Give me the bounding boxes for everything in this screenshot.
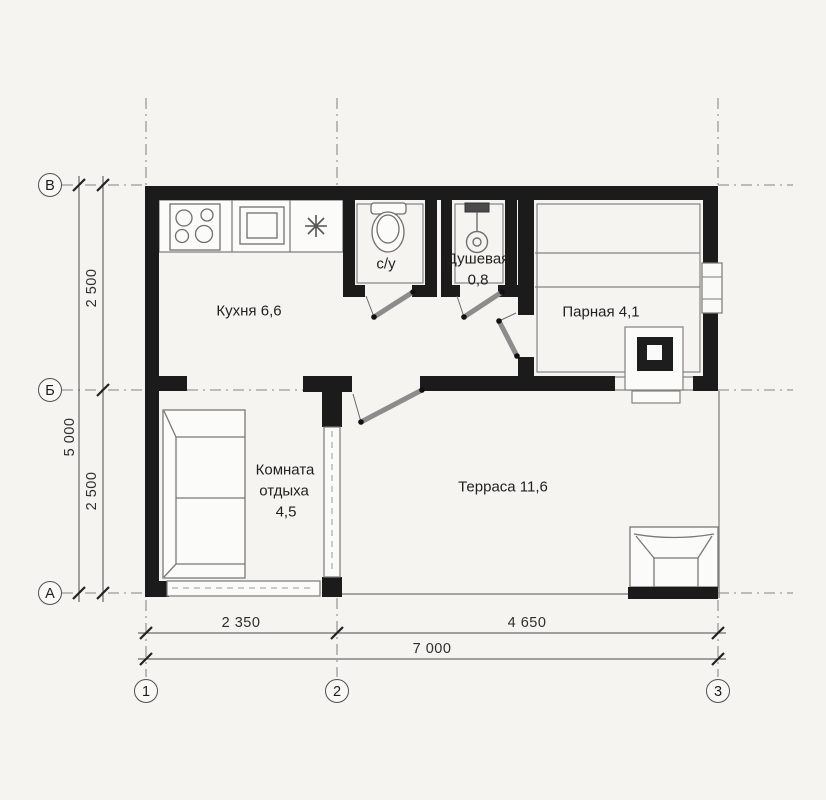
wall-north <box>145 186 718 200</box>
dim-v-segment-top: 2 500 <box>84 269 100 308</box>
wall-west <box>145 186 159 597</box>
doors <box>353 289 520 425</box>
window-lounge-south <box>167 581 320 596</box>
axis-bubble-row-top: В <box>38 173 62 197</box>
axis-bubble-col-right: 3 <box>706 679 730 703</box>
wall-south-corner <box>145 581 169 597</box>
room-area-lounge: 4,5 <box>276 502 297 523</box>
room-label-wc: с/у <box>376 254 395 275</box>
wall-wc-east <box>425 200 437 297</box>
wall-t-stub <box>303 376 352 392</box>
room-label-lounge-2: отдыха <box>259 481 309 502</box>
asterisk-lamp-icon <box>305 215 327 237</box>
floor-plan: Кухня 6,6 с/у Душевая 0,8 Парная 4,1 Ком… <box>0 0 826 800</box>
wall-shower-south-stub <box>441 285 460 297</box>
plan-drawing <box>0 0 826 800</box>
dim-h-segment-left: 2 350 <box>222 615 261 631</box>
room-label-steam: Парная 4,1 <box>562 302 639 323</box>
wall-mid-south <box>420 376 615 391</box>
axis-bubble-row-mid: Б <box>38 378 62 402</box>
wall-steam-west <box>518 200 534 315</box>
table-icon <box>630 527 718 587</box>
wall-steam-west-stub <box>518 357 534 391</box>
dim-h-total: 7 000 <box>413 641 452 657</box>
axis-bubble-col-left: 1 <box>134 679 158 703</box>
stove-feed-tunnel <box>632 391 680 403</box>
dim-v-segment-bottom: 2 500 <box>84 472 100 511</box>
wall-wc-south-stub <box>412 285 437 297</box>
door-shower <box>457 289 505 320</box>
axis-bubble-row-bottom: А <box>38 581 62 605</box>
axis-bubble-col-mid: 2 <box>325 679 349 703</box>
door-terrace <box>353 387 425 425</box>
toilet-icon <box>371 203 406 252</box>
sauna-stove-icon <box>625 327 683 403</box>
wall-wc-south-stub <box>343 285 365 297</box>
terrace-parapet <box>628 587 718 599</box>
room-label-shower: Душевая <box>447 249 510 270</box>
room-label-lounge-1: Комната <box>256 460 315 481</box>
wall-glass-north-stub <box>322 392 342 427</box>
dim-v-total: 5 000 <box>62 418 78 457</box>
room-label-kitchen: Кухня 6,6 <box>216 301 281 322</box>
dim-h-segment-right: 4 650 <box>508 615 547 631</box>
glass-partition-lounge <box>324 427 340 577</box>
door-wc <box>366 289 416 320</box>
sofa-icon <box>163 410 245 578</box>
wall-wc-west <box>343 200 355 297</box>
shower-head-icon <box>465 203 489 253</box>
wall-glass-south-stub <box>322 577 342 597</box>
door-steam <box>496 313 520 359</box>
sauna-bench <box>535 253 700 287</box>
wall-lounge-north-stub <box>159 376 187 391</box>
room-area-shower: 0,8 <box>468 270 489 291</box>
window-steam-east <box>702 263 722 313</box>
room-label-terrace: Терраса 11,6 <box>458 477 548 498</box>
wall-mid-south <box>693 376 718 391</box>
